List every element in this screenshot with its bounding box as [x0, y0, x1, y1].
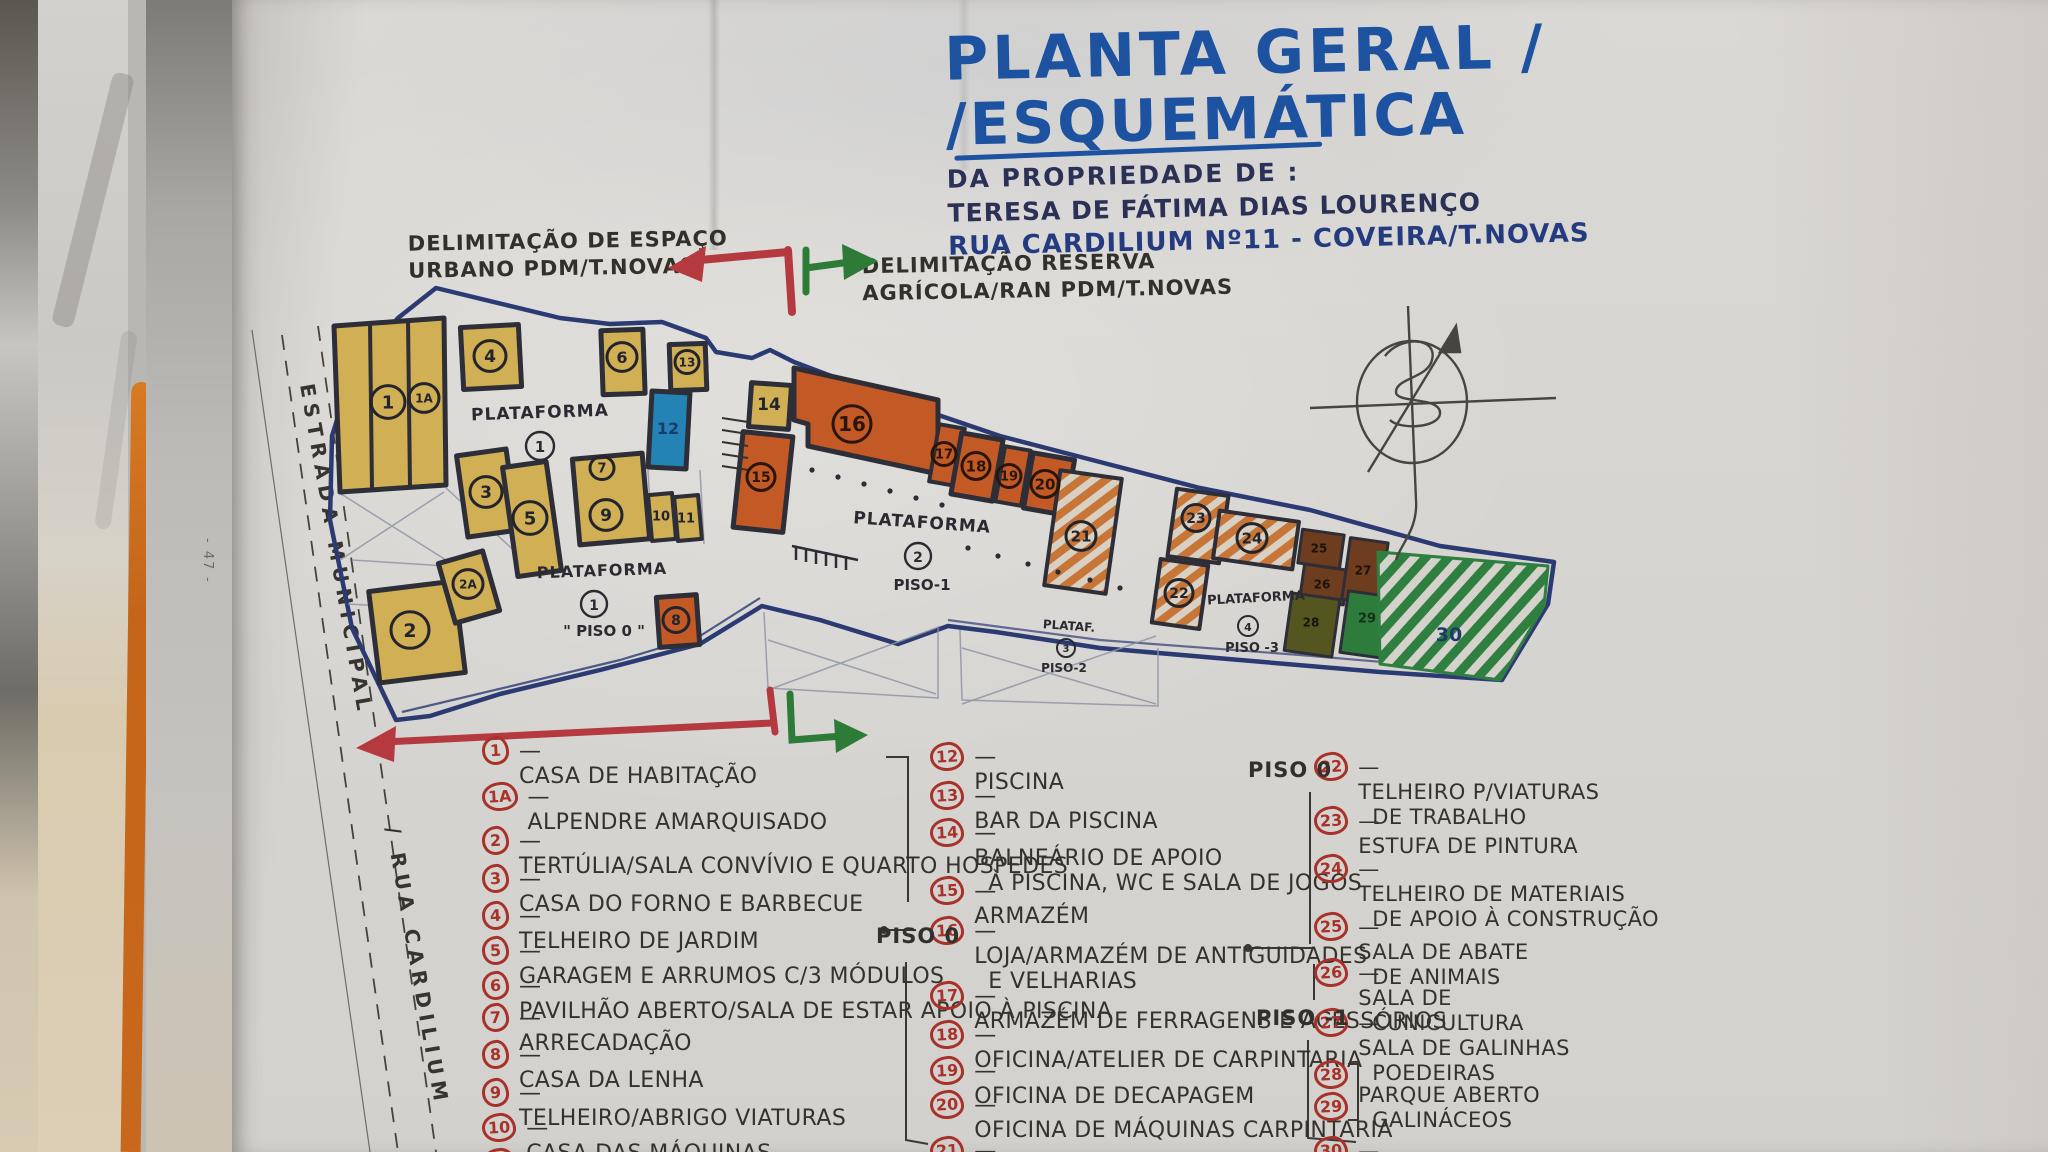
- legend-item-number: 13: [929, 780, 965, 811]
- legend-item-number: 1: [481, 735, 509, 765]
- plan-marker-30: 30: [1436, 624, 1462, 646]
- plan-marker-11: 11: [677, 512, 695, 527]
- legend-item-number: 23: [1313, 805, 1349, 836]
- legend-row: 10 CASA DAS MÁQUINAS: [482, 1113, 771, 1152]
- agri-limit-arrow-green: [806, 244, 878, 292]
- plan-marker-27: 27: [1355, 563, 1372, 577]
- terrain-30: [1378, 552, 1548, 680]
- plan-marker-12: 12: [657, 419, 679, 438]
- platform3-num: 3: [1063, 644, 1070, 655]
- svg-text:13: 13: [679, 355, 696, 369]
- legend-item-number: 12: [929, 741, 965, 772]
- platform4-num: 4: [1244, 621, 1252, 634]
- svg-text:28: 28: [1303, 615, 1320, 629]
- platform1-word: PLATAFORMA: [471, 401, 609, 426]
- svg-text:22: 22: [1169, 586, 1188, 602]
- platform2-piso: PISO-1: [893, 576, 950, 594]
- legend-row: 23 ESTUFA DE PINTURA: [1314, 806, 1578, 859]
- urban-limit-arrow-red: [668, 246, 792, 312]
- legend-item-text: TERRENO RESTANTE: [1358, 1136, 1580, 1152]
- piso0-label-col2: PISO 0: [876, 924, 960, 948]
- legend-item-number: 20: [929, 1089, 965, 1120]
- legend-item-text: CASA DAS MÁQUINAS: [526, 1113, 771, 1152]
- svg-text:6: 6: [616, 348, 627, 367]
- legend-item-number: 2: [481, 825, 509, 855]
- svg-text:14: 14: [757, 395, 781, 415]
- svg-text:19: 19: [1000, 470, 1018, 485]
- legend-item-number: 30: [1313, 1135, 1349, 1152]
- dimension-arrow-green: [790, 694, 868, 753]
- legend-row: 11 SALA D: [482, 1148, 610, 1152]
- svg-text:18: 18: [966, 457, 987, 475]
- plan-marker-28: 28: [1303, 615, 1320, 629]
- piso0-label-col3: PISO 0: [1248, 758, 1332, 782]
- legend-item-number: 6: [481, 970, 509, 1000]
- svg-text:27: 27: [1355, 563, 1372, 577]
- plan-marker-29: 29: [1358, 612, 1376, 627]
- platform3-word: PLATAF.: [1042, 617, 1095, 635]
- svg-text:30: 30: [1436, 624, 1462, 646]
- legend-item-number: 24: [1313, 853, 1349, 884]
- road-label-2: / RUA CARDILIUM: [381, 825, 454, 1109]
- platform2-num: 2: [913, 550, 923, 566]
- legend-item-text: SALA DE GALINHASPOEDEIRAS: [1358, 1008, 1570, 1086]
- legend-item-number: 9: [481, 1077, 509, 1107]
- legend-item-text: ESTUFA DE PINTURA: [1358, 806, 1578, 859]
- legend-item-number: 19: [929, 1055, 965, 1086]
- fence-comb-mark: [792, 546, 858, 570]
- svg-text:25: 25: [1311, 541, 1328, 555]
- plan-marker-14: 14: [757, 395, 781, 415]
- svg-text:16: 16: [838, 412, 866, 436]
- legend-item-number: 26: [1313, 957, 1349, 988]
- plan-marker-10: 10: [652, 510, 670, 525]
- svg-text:8: 8: [671, 613, 681, 629]
- svg-text:1: 1: [382, 392, 395, 413]
- legend-row: 21 ARMAZÉM DE ESTALEIRO PISO-2: [930, 1136, 1343, 1152]
- svg-text:2: 2: [403, 620, 416, 642]
- platform1b-num: 1: [589, 598, 599, 614]
- svg-text:21: 21: [1071, 527, 1092, 545]
- svg-text:12: 12: [657, 419, 679, 438]
- legend-item-number: 10: [481, 1112, 517, 1143]
- platform2-word: PLATAFORMA: [853, 508, 992, 538]
- svg-text:4: 4: [484, 347, 496, 367]
- legend-item-number: 1A: [481, 781, 518, 812]
- building-16: [794, 368, 938, 474]
- legend-item-number: 21: [929, 1135, 965, 1152]
- legend-item-number: 18: [929, 1019, 965, 1050]
- svg-text:3: 3: [480, 483, 492, 503]
- svg-text:20: 20: [1035, 475, 1056, 493]
- svg-text:29: 29: [1358, 612, 1376, 627]
- legend-item-number: 17: [929, 980, 965, 1011]
- svg-text:23: 23: [1186, 511, 1205, 527]
- svg-text:26: 26: [1314, 577, 1331, 591]
- platform3-piso: PISO-2: [1041, 661, 1087, 675]
- legend-item-number: 25: [1313, 911, 1349, 942]
- legend-item-number: 4: [481, 900, 509, 930]
- photographed-site-plan: 47 PLANTA GERAL / /ESQUEMÁTICA DA PROPRI…: [0, 0, 2048, 1152]
- svg-text:15: 15: [751, 470, 770, 486]
- plan-marker-25: 25: [1311, 541, 1328, 555]
- piso-minus1-label-col3: PISO -1: [1256, 1006, 1350, 1030]
- svg-text:17: 17: [935, 448, 953, 463]
- svg-text:9: 9: [600, 506, 612, 526]
- legend-item-number: 29: [1313, 1091, 1349, 1122]
- svg-text:11: 11: [677, 512, 695, 527]
- platform1b-word: PLATAFORMA: [537, 559, 668, 583]
- legend-item-number: 14: [929, 817, 965, 848]
- legend-item-number: 28: [1313, 1059, 1349, 1090]
- legend-row: 30 TERRENO RESTANTE: [1314, 1136, 1581, 1152]
- svg-text:7: 7: [597, 462, 606, 477]
- legend-item-number: 15: [929, 875, 965, 906]
- platform1-num: 1: [535, 438, 545, 456]
- legend-item-text: PARQUE ABERTOGALINÁCEOS: [1358, 1080, 1540, 1133]
- svg-text:5: 5: [524, 508, 537, 529]
- platform4-piso: PISO -3: [1225, 641, 1279, 656]
- legend-item-number: 5: [481, 935, 509, 965]
- legend-item-text: ARMAZÉM DE ESTALEIRO PISO-2: [974, 1136, 1342, 1152]
- legend-item-number: 7: [481, 1002, 509, 1032]
- legend-item-number: 11: [481, 1147, 517, 1152]
- legend-row: 28: [1314, 1060, 1358, 1089]
- svg-text:24: 24: [1242, 529, 1263, 547]
- svg-text:10: 10: [652, 510, 670, 525]
- plan-marker-26: 26: [1314, 577, 1331, 591]
- svg-text:2A: 2A: [459, 577, 477, 591]
- legend-item-number: 3: [481, 863, 509, 893]
- legend-item-text: SALA D: [526, 1148, 610, 1152]
- svg-text:1A: 1A: [415, 391, 433, 405]
- legend-item-number: 8: [481, 1039, 509, 1069]
- platform1b-piso: " PISO 0 ": [563, 622, 645, 640]
